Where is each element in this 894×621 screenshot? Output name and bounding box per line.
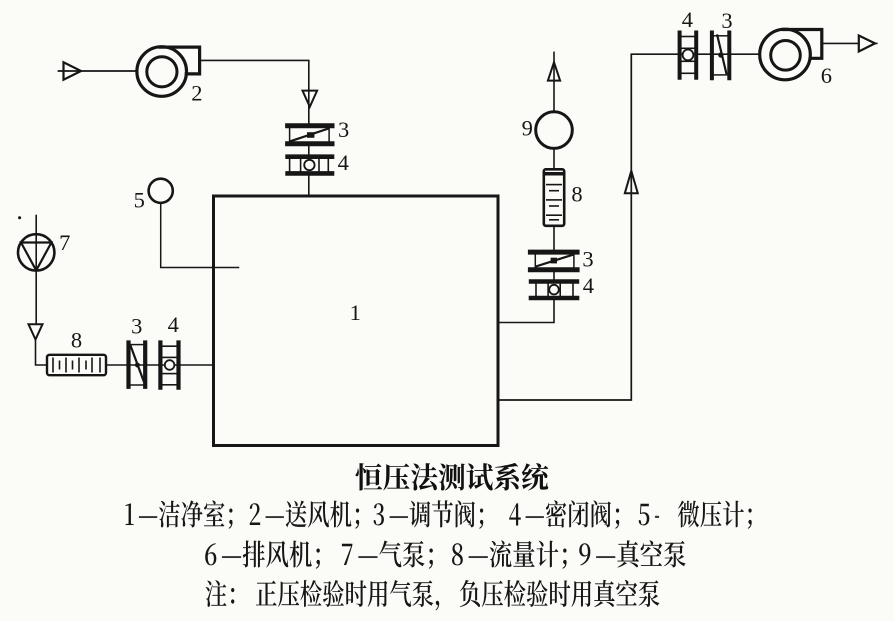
svg-text:7: 7 [59,230,70,255]
svg-text:5: 5 [134,188,145,213]
svg-text:3: 3 [582,247,593,272]
svg-text:4: 4 [338,150,349,175]
svg-text:4: 4 [682,7,693,32]
svg-text:6: 6 [821,63,832,88]
svg-text:3: 3 [338,117,349,142]
svg-text:2: 2 [191,81,202,106]
svg-text:3: 3 [721,8,732,33]
svg-text:4: 4 [168,312,179,337]
svg-text:8: 8 [71,328,82,353]
svg-text:1: 1 [350,300,361,325]
svg-text:3: 3 [131,314,142,339]
svg-text:9: 9 [522,116,533,141]
svg-text:8: 8 [571,181,582,206]
svg-text:4: 4 [583,273,594,298]
